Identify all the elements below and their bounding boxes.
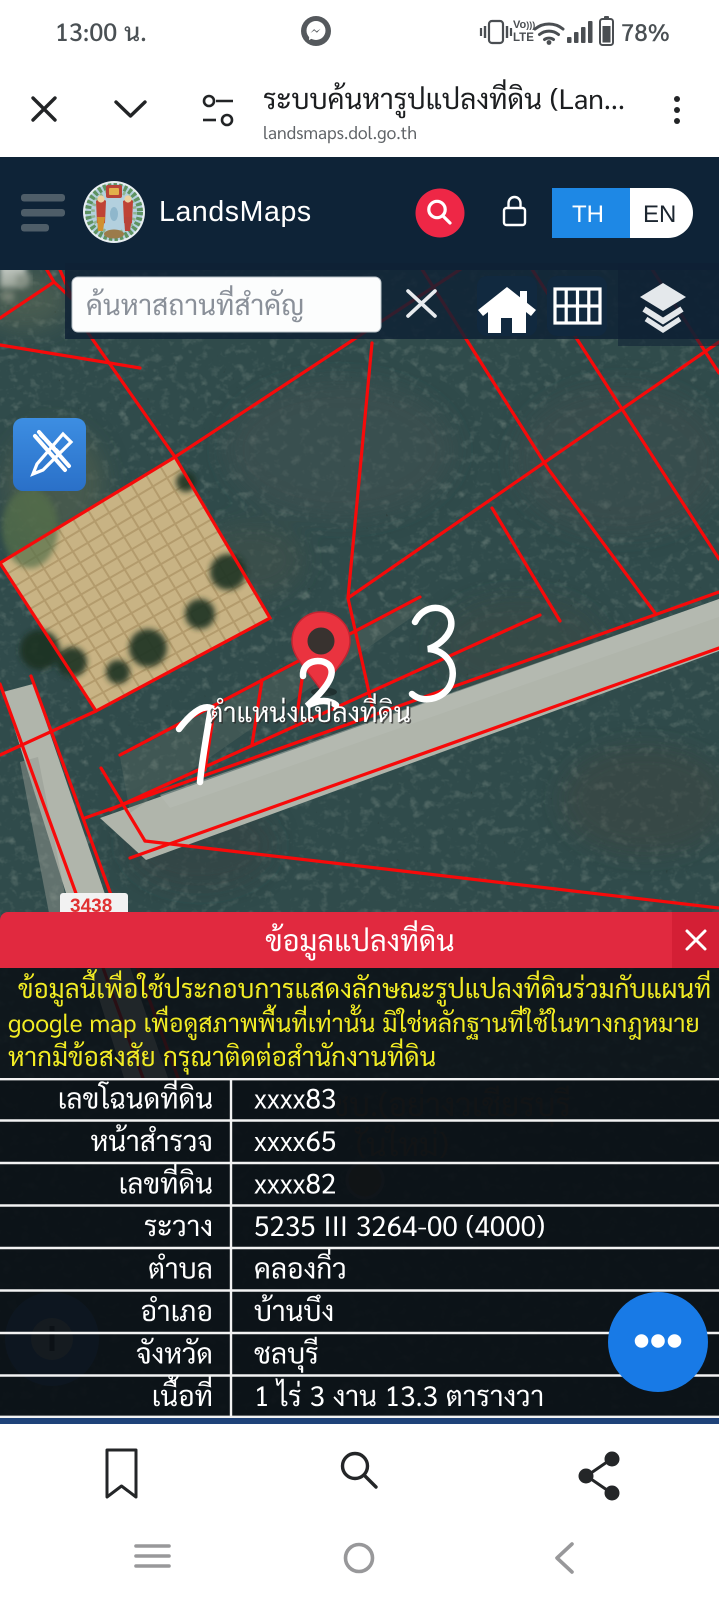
- svg-text:LandsMaps: LandsMaps: [159, 196, 312, 228]
- svg-text:TH: TH: [572, 201, 604, 228]
- svg-text:EN: EN: [643, 201, 676, 228]
